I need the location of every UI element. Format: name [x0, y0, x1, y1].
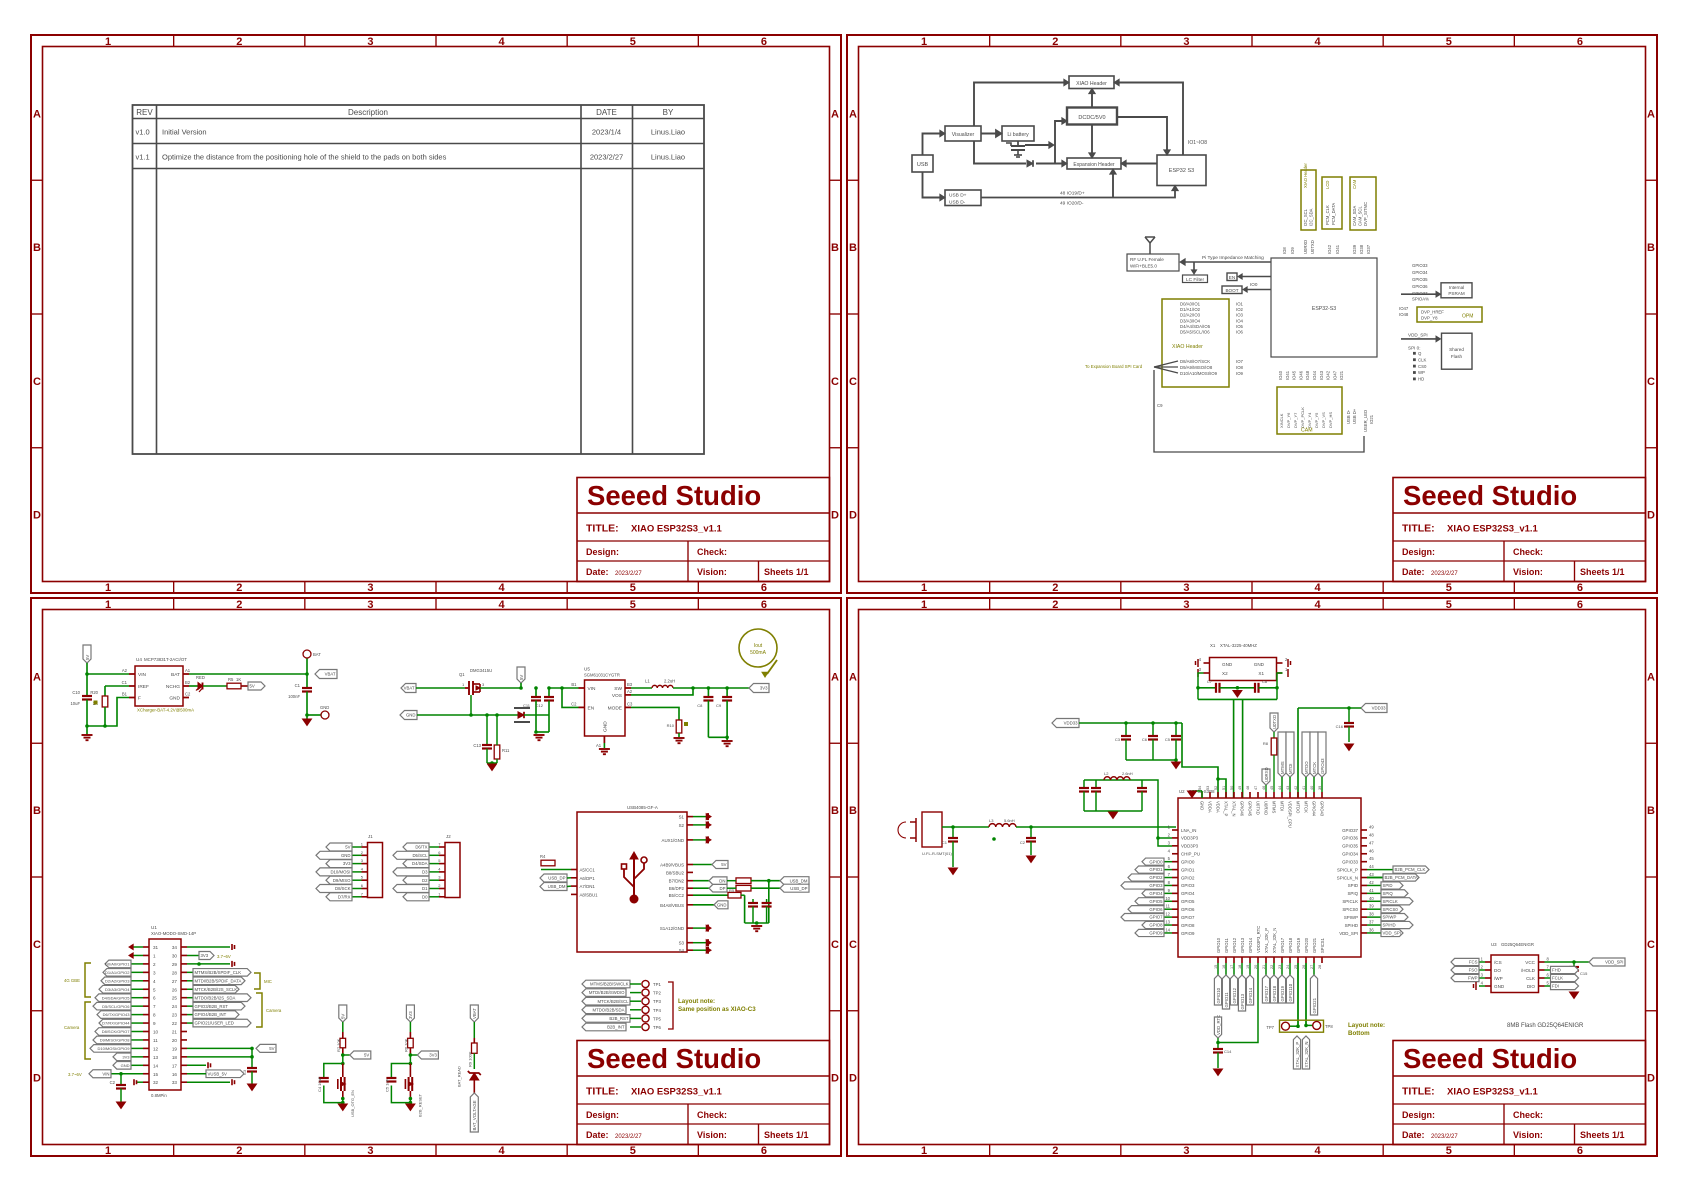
svg-text:40: 40: [1369, 896, 1374, 901]
svg-text:7: 7: [438, 842, 441, 847]
svg-text:C: C: [831, 939, 839, 951]
svg-text:D5/SCL/GPIO6: D5/SCL/GPIO6: [102, 1004, 130, 1009]
svg-text:AUX1/GND: AUX1/GND: [662, 838, 684, 843]
svg-text:D3/A3/GPIO4: D3/A3/GPIO4: [105, 987, 130, 992]
svg-text:D0/A0/GPIO1: D0/A0/GPIO1: [105, 962, 130, 967]
svg-text:R9 100K: R9 100K: [467, 1051, 472, 1067]
svg-text:XTAL_32K_N: XTAL_32K_N: [1304, 1042, 1309, 1068]
svg-text:IO47: IO47: [1332, 370, 1337, 380]
svg-text:SPIOA%: SPIOA%: [1412, 297, 1429, 302]
svg-text:29: 29: [172, 962, 178, 967]
svg-text:VUSB_5V: VUSB_5V: [208, 1071, 227, 1076]
svg-text:VIN: VIN: [588, 686, 597, 692]
svg-text:19: 19: [172, 1046, 178, 1051]
svg-text:B3: B3: [627, 682, 633, 687]
svg-text:2023/2/27: 2023/2/27: [590, 153, 623, 162]
svg-text:4G GBE: 4G GBE: [64, 978, 80, 983]
svg-text:2023/2/27: 2023/2/27: [1431, 571, 1458, 577]
svg-text:4: 4: [499, 1145, 506, 1157]
svg-text:49: 49: [1369, 825, 1374, 830]
svg-text:39: 39: [1369, 904, 1374, 909]
svg-text:48: 48: [1246, 786, 1250, 790]
svg-text:GPIO11: GPIO11: [1224, 938, 1229, 953]
svg-text:GPIO10: GPIO10: [1216, 937, 1221, 953]
svg-text:VDD_SPI: VDD_SPI: [1408, 333, 1428, 338]
svg-text:B2B_INT: B2B_INT: [607, 1025, 625, 1030]
svg-text:CLK: CLK: [1526, 976, 1536, 981]
svg-text:U5: U5: [584, 667, 590, 672]
svg-text:MIC: MIC: [264, 979, 272, 984]
svg-text:5V: 5V: [345, 845, 350, 850]
svg-text:VOS: VOS: [612, 693, 622, 699]
svg-text:Seeed Studio: Seeed Studio: [587, 480, 761, 511]
svg-text:A: A: [849, 671, 857, 683]
svg-text:GPIO18: GPIO18: [1288, 937, 1293, 953]
svg-text:6: 6: [1168, 864, 1171, 869]
svg-text:DVP_Y7: DVP_Y7: [1293, 412, 1298, 428]
svg-text:D10/MOSI/GPIO9: D10/MOSI/GPIO9: [97, 1046, 130, 1051]
svg-text:D2/A2/GPIO3: D2/A2/GPIO3: [105, 978, 130, 983]
svg-text:GPIO1: GPIO1: [1181, 867, 1195, 872]
svg-text:R6 10K: R6 10K: [403, 1038, 408, 1052]
svg-text:B5/CC2: B5/CC2: [669, 893, 685, 898]
svg-text:XTAL_32K_N: XTAL_32K_N: [1272, 928, 1277, 953]
svg-text:REV: REV: [136, 108, 153, 117]
svg-text:DVP_SITMC: DVP_SITMC: [1363, 202, 1368, 226]
svg-text:IO1~IO8: IO1~IO8: [1188, 140, 1207, 146]
svg-text:MTCK/B2B/I2S_SCLK: MTCK/B2B/I2S_SCLK: [195, 987, 238, 992]
svg-text:DVP_HS: DVP_HS: [1328, 412, 1333, 428]
svg-text:C8: C8: [697, 703, 703, 708]
svg-text:USB_DP: USB_DP: [790, 886, 807, 891]
svg-text:5: 5: [630, 582, 636, 594]
svg-text:5V: 5V: [269, 1046, 274, 1051]
svg-text:MTDO: MTDO: [1296, 801, 1301, 814]
svg-text:2023/2/27: 2023/2/27: [615, 571, 642, 577]
svg-text:2: 2: [1052, 36, 1058, 48]
svg-text:3: 3: [361, 858, 364, 863]
svg-text:44: 44: [1369, 864, 1374, 869]
svg-text:GPIO17: GPIO17: [1264, 985, 1269, 1001]
svg-text:USB D+: USB D+: [1352, 408, 1357, 424]
svg-text:RF U.FL Female: RF U.FL Female: [1130, 257, 1164, 262]
svg-text:U0TXD: U0TXD: [1256, 801, 1261, 815]
svg-text:9: 9: [153, 1021, 156, 1026]
svg-text:Design:: Design:: [1402, 1110, 1435, 1120]
svg-text:2: 2: [438, 883, 441, 888]
svg-text:38: 38: [1369, 912, 1374, 917]
svg-text:A: A: [849, 108, 857, 120]
svg-text:MTCK/B2B/SCL: MTCK/B2B/SCL: [597, 999, 629, 1004]
svg-text:R7 10K: R7 10K: [336, 1038, 341, 1052]
svg-text:8: 8: [1168, 880, 1171, 885]
svg-text:B: B: [1647, 805, 1655, 817]
svg-text:1: 1: [105, 36, 111, 48]
svg-text:J2: J2: [446, 834, 451, 839]
svg-text:C4 10uF: C4 10uF: [317, 1076, 322, 1092]
svg-text:USER_LED: USER_LED: [1363, 410, 1368, 432]
svg-text:SPICS0: SPICS0: [1383, 907, 1399, 912]
svg-text:D7/RX: D7/RX: [338, 894, 351, 899]
svg-text:I2C_SDA: I2C_SDA: [1309, 208, 1314, 226]
svg-text:Bottom: Bottom: [1348, 1030, 1370, 1037]
svg-text:6: 6: [761, 36, 767, 48]
svg-text:Vision:: Vision:: [1513, 567, 1543, 577]
svg-text:D8/SCK: D8/SCK: [335, 886, 351, 891]
svg-text:2: 2: [236, 599, 242, 611]
svg-text:2: 2: [1052, 1145, 1058, 1157]
svg-text:TITLE:: TITLE:: [1402, 1086, 1435, 1098]
svg-text:IO43: IO43: [1319, 370, 1324, 380]
svg-text:FHD: FHD: [1552, 968, 1561, 973]
svg-text:Date:: Date:: [1402, 567, 1425, 577]
svg-text:Iout: Iout: [754, 643, 763, 649]
svg-text:8: 8: [1547, 957, 1550, 962]
svg-text:3: 3: [482, 682, 485, 687]
svg-text:R10: R10: [667, 723, 675, 728]
svg-text:IO46: IO46: [1298, 370, 1303, 380]
svg-text:52: 52: [1214, 786, 1218, 790]
svg-text:VDD3P3_RTC: VDD3P3_RTC: [1256, 926, 1261, 953]
svg-text:R5: R5: [228, 677, 234, 682]
svg-text:B: B: [831, 805, 839, 817]
svg-text:XTAL_P: XTAL_P: [1224, 801, 1229, 816]
svg-text:DVP_HREF: DVP_HREF: [1421, 310, 1444, 315]
svg-text:GPIO36: GPIO36: [1342, 836, 1358, 841]
svg-text:R4: R4: [540, 854, 546, 859]
svg-text:3: 3: [1183, 1145, 1189, 1157]
svg-text:USB4085-GF-A: USB4085-GF-A: [627, 805, 658, 810]
svg-text:D: D: [1647, 1073, 1655, 1085]
svg-text:VDD3P3: VDD3P3: [1181, 844, 1199, 849]
svg-text:GPIO13: GPIO13: [1240, 937, 1245, 953]
svg-text:FDI: FDI: [1552, 984, 1559, 989]
svg-text:R11: R11: [502, 748, 510, 753]
svg-text:4: 4: [438, 866, 441, 871]
svg-text:DVP_VS: DVP_VS: [1321, 412, 1326, 428]
svg-text:VDDSPI_CPU: VDDSPI_CPU: [1288, 801, 1293, 828]
svg-text:FSO: FSO: [1469, 968, 1478, 973]
svg-text:D2/A2/IO3: D2/A2/IO3: [1180, 313, 1201, 318]
svg-text:Description: Description: [348, 108, 388, 117]
svg-text:TP7: TP7: [1266, 1025, 1274, 1030]
svg-text:D4/SDA: D4/SDA: [412, 861, 428, 866]
svg-text:C1: C1: [122, 680, 128, 685]
svg-text:SPIHD: SPIHD: [1345, 923, 1358, 928]
svg-text:4: 4: [1168, 848, 1171, 853]
svg-text:CAM_SCL: CAM_SCL: [1358, 206, 1363, 226]
svg-text:B1: B1: [571, 682, 577, 687]
svg-text:5: 5: [1446, 1145, 1452, 1157]
svg-text:A: A: [33, 671, 41, 683]
svg-text:4: 4: [361, 866, 364, 871]
svg-text:R5: R5: [729, 888, 735, 893]
svg-text:GPIO12: GPIO12: [1232, 987, 1237, 1003]
svg-text:3V3: 3V3: [760, 686, 768, 691]
svg-text:22: 22: [172, 1021, 178, 1026]
svg-text:GPIO9: GPIO9: [1181, 931, 1195, 936]
svg-text:Q: Q: [1418, 351, 1422, 356]
svg-text:C3: C3: [1115, 737, 1121, 742]
svg-text:USB D-: USB D-: [949, 200, 966, 206]
svg-text:D1/A1/IO2: D1/A1/IO2: [1180, 307, 1201, 312]
svg-text:XIAO ESP32S3_v1.1: XIAO ESP32S3_v1.1: [631, 1087, 723, 1098]
svg-text:Camera: Camera: [266, 1008, 282, 1013]
svg-text:DP: DP: [720, 886, 726, 891]
svg-text:BOOT: BOOT: [1225, 288, 1238, 293]
svg-text:DO: DO: [1494, 968, 1501, 973]
svg-text:C11: C11: [523, 703, 531, 708]
svg-text:D5/SCL: D5/SCL: [412, 853, 428, 858]
svg-text:GPIO19: GPIO19: [1280, 985, 1285, 1001]
svg-text:28: 28: [1318, 965, 1322, 969]
svg-text:GPIO7: GPIO7: [1181, 915, 1195, 920]
svg-text:2: 2: [1052, 599, 1058, 611]
svg-text:2023/1/4: 2023/1/4: [592, 128, 621, 137]
svg-text:IO42: IO42: [1326, 370, 1331, 380]
svg-text:4: 4: [1315, 1145, 1322, 1157]
svg-text:26: 26: [172, 987, 178, 992]
svg-text:v1.1: v1.1: [136, 153, 150, 162]
svg-text:D6/TX: D6/TX: [415, 845, 427, 850]
svg-text:XCharger-BAT-4.2V@500mA: XCharger-BAT-4.2V@500mA: [137, 708, 194, 713]
svg-text:Vision:: Vision:: [697, 1130, 727, 1140]
svg-text:1: 1: [105, 582, 111, 594]
svg-text:ESP32-S3: ESP32-S3: [1312, 306, 1336, 312]
svg-text:30: 30: [172, 953, 178, 958]
svg-text:XIAO Header: XIAO Header: [1172, 344, 1203, 350]
svg-text:GPIO18: GPIO18: [1272, 985, 1277, 1001]
svg-text:12: 12: [153, 1046, 159, 1051]
svg-text:VDD_SPI: VDD_SPI: [1605, 960, 1623, 965]
svg-text:IO9: IO9: [1290, 247, 1295, 254]
svg-text:C2: C2: [185, 692, 191, 697]
svg-text:3: 3: [153, 970, 156, 975]
svg-text:Camera: Camera: [64, 1025, 80, 1030]
svg-text:500mA: 500mA: [750, 650, 767, 656]
svg-text:D5/A5/SCL/IO6: D5/A5/SCL/IO6: [1180, 330, 1210, 335]
svg-text:32: 32: [153, 1080, 159, 1085]
svg-text:Check:: Check:: [697, 1110, 727, 1120]
svg-text:C1: C1: [295, 683, 301, 688]
svg-text:TP5: TP5: [653, 1016, 661, 1021]
svg-text:C: C: [1647, 939, 1655, 951]
svg-text:13: 13: [1165, 920, 1170, 925]
svg-text:GPIO3/B2B_RST: GPIO3/B2B_RST: [195, 1004, 229, 1009]
svg-text:2.6nH: 2.6nH: [1122, 771, 1133, 776]
svg-text:USB_DM: USB_DM: [790, 878, 808, 883]
svg-text:16: 16: [172, 1072, 178, 1077]
svg-text:MTDI: MTDI: [1288, 763, 1293, 774]
svg-text:VDD33: VDD33: [1372, 706, 1386, 711]
svg-text:IO37: IO37: [1366, 244, 1371, 254]
svg-text:Vision:: Vision:: [697, 567, 727, 577]
svg-text:SPIHD: SPIHD: [1383, 923, 1396, 928]
svg-text:CLK: CLK: [1418, 357, 1426, 362]
svg-text:C8: C8: [1262, 679, 1268, 684]
svg-text:CAM_SDA: CAM_SDA: [1352, 206, 1357, 226]
svg-text:43: 43: [1369, 872, 1374, 877]
svg-text:GPIO33: GPIO33: [1412, 263, 1428, 268]
svg-text:A6/DP1: A6/DP1: [580, 876, 596, 881]
svg-text:2: 2: [236, 36, 242, 48]
svg-text:Design:: Design:: [586, 1110, 619, 1120]
svg-text:B6/DP2: B6/DP2: [669, 886, 685, 891]
svg-text:48 IO19/D+: 48 IO19/D+: [1060, 191, 1085, 197]
svg-text:5V: 5V: [519, 675, 524, 680]
svg-text:1: 1: [153, 953, 156, 958]
svg-text:CHIP_PU: CHIP_PU: [1181, 852, 1200, 857]
svg-text:Date:: Date:: [586, 567, 609, 577]
svg-text:D0/A0/IO1: D0/A0/IO1: [1180, 302, 1201, 307]
svg-text:SPID: SPID: [1383, 883, 1393, 888]
svg-text:SPICLK_P: SPICLK_P: [1337, 867, 1358, 872]
svg-text:A7/DN1: A7/DN1: [580, 884, 596, 889]
svg-text:D9/MISO: D9/MISO: [333, 878, 351, 883]
svg-text:41: 41: [1369, 888, 1374, 893]
svg-text:SPICLK: SPICLK: [1342, 899, 1358, 904]
svg-text:Check:: Check:: [1513, 1110, 1543, 1120]
svg-text:IO7: IO7: [1236, 359, 1244, 364]
svg-text:5V: 5V: [721, 862, 726, 867]
svg-text:C9: C9: [1157, 403, 1163, 408]
svg-text:IO21: IO21: [1339, 370, 1344, 380]
svg-text:50: 50: [1230, 786, 1234, 790]
svg-text:2.2uH: 2.2uH: [664, 679, 675, 684]
svg-text:GPIO12: GPIO12: [1232, 937, 1237, 953]
svg-text:GPIO45: GPIO45: [1248, 801, 1253, 817]
svg-text:TITLE:: TITLE:: [586, 1086, 619, 1098]
svg-text:4: 4: [1199, 657, 1202, 662]
svg-text:MTDO: MTDO: [1304, 761, 1309, 774]
svg-text:C15: C15: [1580, 971, 1588, 976]
svg-text:D3/A3/IO4: D3/A3/IO4: [1180, 318, 1201, 323]
svg-text:GPIO8: GPIO8: [1181, 923, 1195, 928]
svg-text:4: 4: [1315, 582, 1322, 594]
svg-text:GPIO21/USER_LED: GPIO21/USER_LED: [195, 1021, 234, 1026]
svg-text:MTMS/B2B/SWCLK: MTMS/B2B/SWCLK: [590, 982, 629, 987]
svg-text:Shared: Shared: [1449, 347, 1464, 352]
svg-text:Initial Version: Initial Version: [162, 128, 207, 137]
svg-text:C: C: [831, 376, 839, 388]
svg-text:GPIO13: GPIO13: [1240, 993, 1245, 1009]
svg-text:C5 1uF: C5 1uF: [384, 1078, 389, 1092]
svg-text:5V: 5V: [85, 655, 90, 660]
svg-text:3: 3: [367, 36, 373, 48]
svg-text:5: 5: [1446, 582, 1452, 594]
svg-text:D: D: [33, 510, 41, 522]
svg-text:34: 34: [172, 945, 178, 950]
svg-text:D: D: [33, 1073, 41, 1085]
svg-text:GPIO36: GPIO36: [1412, 284, 1428, 289]
svg-text:IO0: IO0: [1250, 282, 1258, 287]
svg-text:VDD3P3: VDD3P3: [1181, 836, 1199, 841]
svg-text:VCC: VCC: [1525, 960, 1535, 965]
svg-text:USB_DM: USB_DM: [548, 884, 566, 889]
svg-text:GPIO9: GPIO9: [1149, 931, 1163, 936]
svg-text:GPIO20: GPIO20: [1304, 937, 1309, 953]
svg-text:Design:: Design:: [586, 547, 619, 557]
svg-text:A2: A2: [122, 668, 128, 673]
svg-text:U1: U1: [151, 925, 157, 930]
svg-text:A: A: [33, 108, 41, 120]
svg-text:U2: U2: [1179, 789, 1185, 794]
svg-text:IO39: IO39: [1352, 244, 1357, 254]
svg-text:D10/A10/MOSI/IO9: D10/A10/MOSI/IO9: [1180, 371, 1218, 376]
svg-text:3V3: 3V3: [408, 1011, 413, 1019]
svg-text:BAT: BAT: [313, 652, 321, 657]
svg-text:SPIWP: SPIWP: [1383, 915, 1397, 920]
svg-text:S2: S2: [679, 823, 685, 828]
svg-text:SPI 0:: SPI 0:: [1408, 346, 1421, 351]
svg-text:GPIO0: GPIO0: [1149, 859, 1163, 864]
svg-text:C1: C1: [942, 840, 948, 845]
svg-text:XTAL_N: XTAL_N: [1232, 801, 1237, 817]
svg-text:13: 13: [153, 1055, 159, 1060]
svg-text:USB_OTG_EN: USB_OTG_EN: [350, 1090, 355, 1117]
svg-text:R8: R8: [1263, 741, 1269, 746]
svg-text:Optimize the distance from the: Optimize the distance from the positioni…: [162, 153, 447, 162]
svg-text:A4B9/VBUS: A4B9/VBUS: [660, 863, 684, 868]
svg-text:GND: GND: [717, 902, 727, 907]
svg-text:HD: HD: [1418, 377, 1424, 382]
svg-text:/WP: /WP: [1494, 976, 1503, 981]
svg-text:3: 3: [438, 875, 441, 880]
svg-text:FWP: FWP: [1468, 976, 1478, 981]
svg-text:D4/A4/SDA/IO5: D4/A4/SDA/IO5: [1180, 324, 1211, 329]
svg-text:Visualizer: Visualizer: [952, 132, 975, 138]
svg-text:XINCLK: XINCLK: [1279, 413, 1284, 428]
svg-text:GPIO1: GPIO1: [1149, 867, 1163, 872]
svg-text:20: 20: [172, 1038, 178, 1043]
svg-text:Date:: Date:: [586, 1130, 609, 1140]
svg-text:IO45: IO45: [1292, 370, 1297, 380]
svg-text:5: 5: [630, 599, 636, 611]
svg-text:VDDA: VDDA: [1208, 801, 1213, 813]
svg-text:GPIO14: GPIO14: [1248, 987, 1253, 1003]
svg-text:GND: GND: [1200, 801, 1205, 810]
svg-text:MCP73831T-2ACI/OT: MCP73831T-2ACI/OT: [144, 657, 187, 662]
svg-text:3V3: 3V3: [122, 1054, 130, 1059]
svg-text:R20: R20: [90, 690, 98, 695]
svg-text:A5/CC1: A5/CC1: [580, 868, 596, 873]
svg-text:D2: D2: [422, 878, 428, 883]
svg-text:XIAO Header: XIAO Header: [1303, 162, 1308, 188]
svg-text:TITLE:: TITLE:: [586, 523, 619, 535]
svg-text:XIAO ESP32S3_v1.1: XIAO ESP32S3_v1.1: [631, 524, 723, 535]
svg-text:U4: U4: [136, 657, 142, 662]
svg-text:49: 49: [1238, 786, 1242, 790]
svg-text:BAT_VOLTAGE: BAT_VOLTAGE: [472, 1100, 477, 1130]
svg-text:GPIO46: GPIO46: [1240, 801, 1245, 817]
svg-text:9: 9: [1168, 888, 1171, 893]
svg-text:DVP_Y8: DVP_Y8: [1421, 316, 1438, 321]
svg-text:DVP_Y5: DVP_Y5: [1314, 412, 1319, 428]
svg-text:B2B_RST: B2B_RST: [609, 1016, 628, 1021]
svg-text:WP: WP: [1418, 370, 1425, 375]
svg-text:7: 7: [1547, 965, 1550, 970]
svg-text:XTAL-3225-40MHZ: XTAL-3225-40MHZ: [1220, 643, 1257, 648]
svg-text:2: 2: [1168, 832, 1171, 837]
svg-text:1K: 1K: [236, 677, 241, 682]
svg-text:C9: C9: [716, 703, 722, 708]
svg-text:6: 6: [1577, 36, 1583, 48]
svg-text:B2B_PCM_CLK: B2B_PCM_CLK: [1395, 867, 1426, 872]
svg-text:USB: USB: [917, 162, 929, 168]
svg-text:D: D: [849, 510, 857, 522]
svg-text:FCLK: FCLK: [1552, 976, 1563, 981]
svg-text:31: 31: [153, 945, 159, 950]
